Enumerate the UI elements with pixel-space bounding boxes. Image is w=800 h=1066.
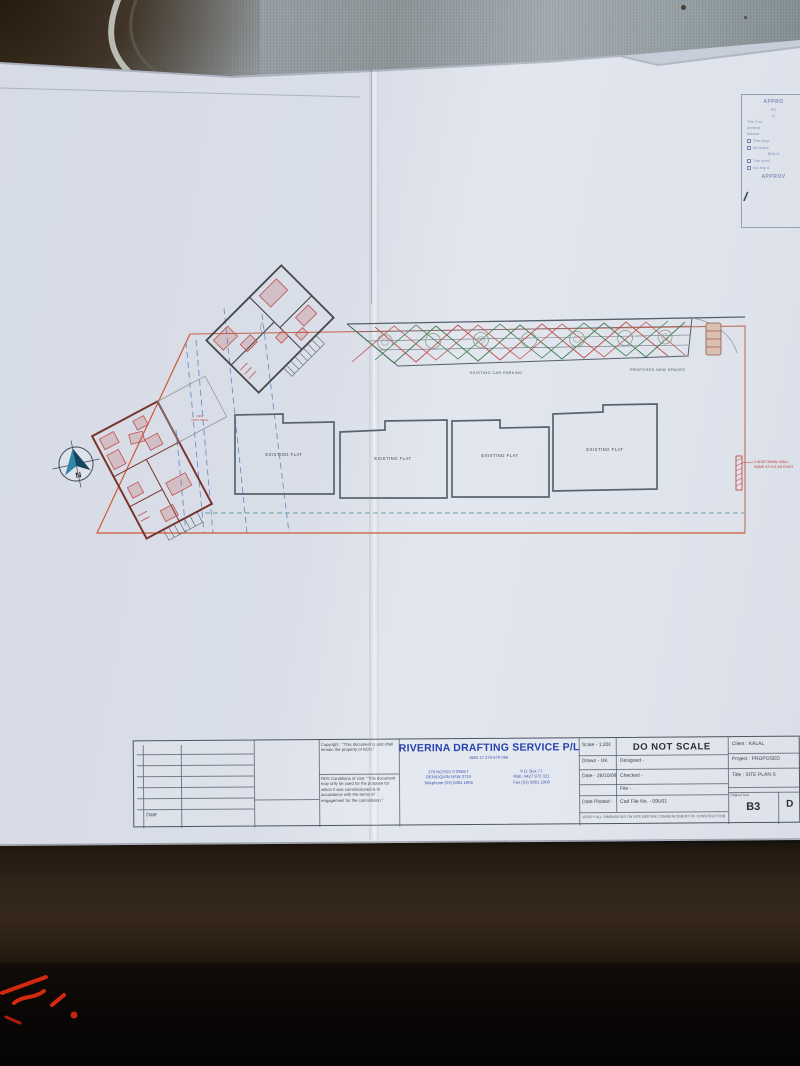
- conditions-of-use: RDS Conditions of Use: "This document ma…: [321, 775, 397, 826]
- copyright-note: Copyright : "This document is and shall …: [321, 741, 397, 773]
- stamp-line: The nomi: [753, 158, 770, 164]
- stamp-line: No any d: [753, 165, 769, 171]
- checked-by: Checked -: [620, 773, 643, 779]
- company-address: 275 NOYES STREET DENILIQUIN NSW 2710 Tel…: [411, 769, 486, 786]
- photo-of-site-plan: APPRO PO D The Cou underst follows The r…: [0, 0, 800, 1066]
- stamp-line: APPRO: [747, 99, 800, 107]
- drawn-by: Drawn - UK: [582, 758, 608, 764]
- date-plotted: Date Plotted -: [582, 799, 613, 805]
- date-value: Date - 28/10/09: [582, 773, 617, 779]
- stamp-line: No inspe: [753, 145, 769, 151]
- stamp-line: follows: [747, 131, 800, 137]
- speck: [681, 5, 686, 10]
- stamp-line: The requ: [753, 138, 769, 144]
- drawing-title: Title : SITE PLAN S: [732, 772, 776, 778]
- original-size-label: Original Size: [730, 793, 749, 797]
- council-approval-stamp: APPRO PO D The Cou underst follows The r…: [741, 94, 800, 228]
- client-name: Client : KALAL: [732, 741, 765, 747]
- do-not-scale: DO NOT SCALE: [616, 741, 728, 753]
- scale-value: Scale - 1:200: [582, 742, 612, 748]
- speck: [744, 16, 747, 19]
- company-name: RIVERINA DRAFTING SERVICE P/L: [399, 741, 579, 754]
- checkbox: [747, 166, 751, 170]
- checkbox: [747, 159, 751, 163]
- stamp-line: BUILD: [747, 151, 800, 157]
- revision-date-label: Date: [146, 812, 157, 818]
- original-size-value: B3: [746, 801, 760, 813]
- file-ref: File -: [620, 786, 631, 792]
- cad-file-no: Cad File No. - 09U01: [620, 799, 667, 805]
- project-name: Project : PROPOSED: [732, 756, 780, 762]
- designed-by: Designed -: [620, 758, 644, 764]
- company-abn: ABN 17 274 679 066: [399, 754, 579, 761]
- title-block: Date Copyright : "This document is and s…: [133, 736, 800, 828]
- tick-mark: /: [742, 187, 750, 207]
- checkbox: [747, 146, 751, 150]
- company-contacts: P.O. Box 77 Mob. 0427 972 321 Fax (03) 5…: [494, 768, 569, 785]
- fold-crease: [371, 64, 372, 304]
- drawing-number: D: [786, 799, 793, 810]
- stamp-line: APPROV: [747, 174, 800, 182]
- floor-shadow: [0, 963, 800, 1066]
- table-edge: [0, 843, 800, 973]
- checkbox: [747, 139, 751, 143]
- red-scribble: [0, 965, 110, 1045]
- dimensions-disclaimer: VERIFY ALL DIMENSIONS ON SITE BEFORE COM…: [579, 814, 728, 819]
